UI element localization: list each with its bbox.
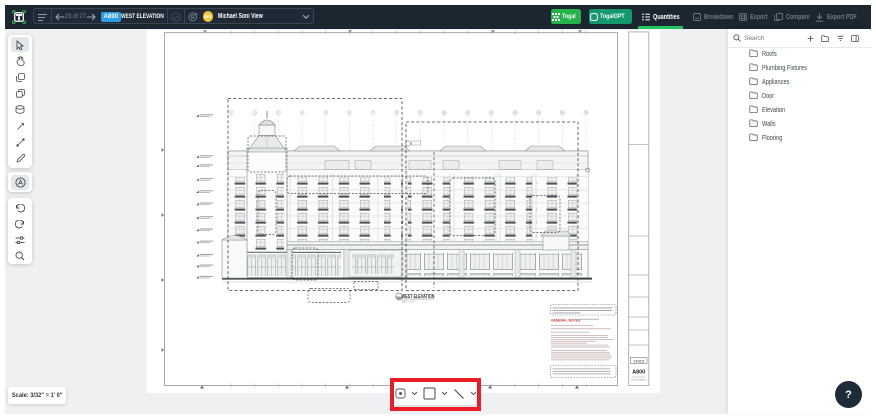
svg-text:3/32" = 1'-0": 3/32" = 1'-0" (402, 299, 416, 303)
svg-text:1: 1 (230, 110, 232, 114)
svg-text:3: 3 (277, 110, 279, 114)
svg-text:WEST ELEVATION: WEST ELEVATION (631, 378, 647, 381)
svg-text:12: 12 (490, 110, 494, 114)
svg-text:8: 8 (396, 110, 398, 114)
svg-text:14023: 14023 (633, 358, 645, 363)
svg-text:13: 13 (513, 110, 517, 114)
svg-text:4: 4 (301, 110, 303, 114)
svg-text:9: 9 (419, 110, 421, 114)
svg-text:15: 15 (561, 110, 565, 114)
svg-text:14: 14 (537, 110, 541, 114)
svg-text:11: 11 (466, 110, 469, 114)
svg-text:5: 5 (325, 110, 327, 114)
svg-text:A800: A800 (632, 369, 645, 375)
svg-text:7: 7 (372, 110, 374, 114)
svg-text:10: 10 (442, 110, 446, 114)
svg-text:6: 6 (348, 110, 350, 114)
svg-text:GENERAL NOTES: GENERAL NOTES (551, 318, 581, 322)
svg-text:16: 16 (584, 110, 588, 114)
svg-text:2: 2 (254, 110, 256, 114)
